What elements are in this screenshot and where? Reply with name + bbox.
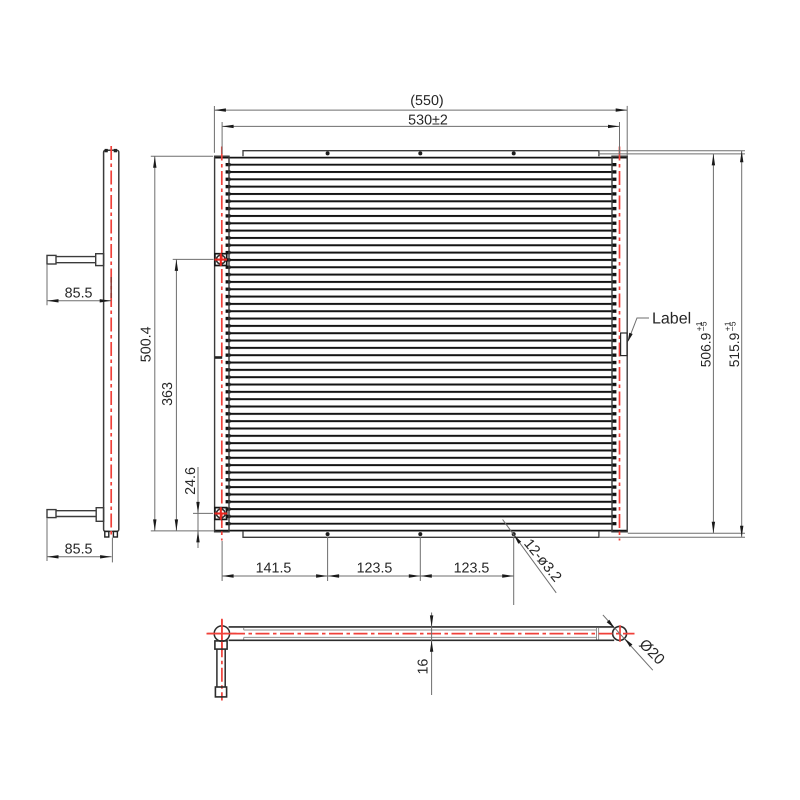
svg-text:(550): (550)	[410, 93, 443, 109]
svg-text:530±2: 530±2	[408, 113, 448, 129]
svg-text:123.5: 123.5	[357, 561, 393, 577]
svg-text:363: 363	[160, 382, 176, 406]
svg-text:123.5: 123.5	[454, 561, 490, 577]
svg-text:506.9: 506.9	[698, 332, 713, 367]
svg-text:24.6: 24.6	[183, 467, 199, 495]
svg-text:141.5: 141.5	[256, 561, 292, 577]
svg-text:85.5: 85.5	[65, 286, 93, 302]
svg-text:85.5: 85.5	[65, 542, 93, 558]
svg-text:16: 16	[416, 659, 432, 675]
svg-text:515.9: 515.9	[727, 332, 742, 367]
svg-text:−5: −5	[728, 321, 738, 331]
svg-text:12-ø3.2: 12-ø3.2	[520, 536, 564, 585]
svg-text:Label: Label	[652, 311, 691, 328]
svg-text:−5: −5	[699, 321, 709, 331]
svg-text:Ø20: Ø20	[636, 636, 668, 668]
svg-text:500.4: 500.4	[139, 326, 155, 362]
